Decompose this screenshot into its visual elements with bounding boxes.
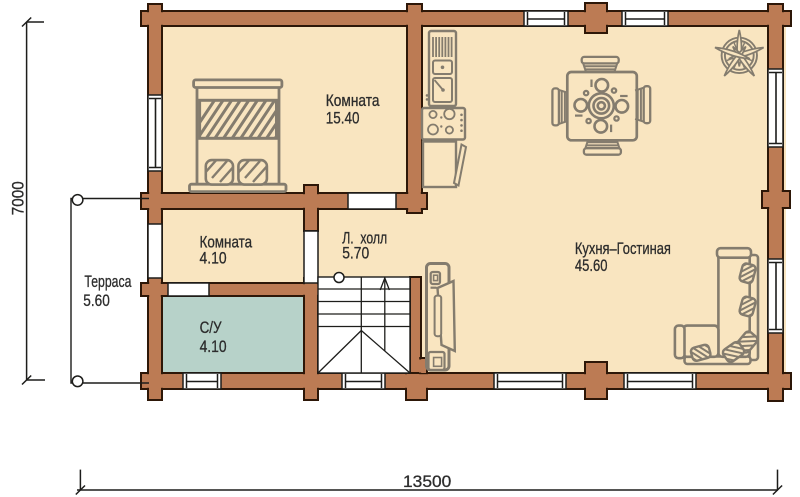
svg-text:4.10: 4.10 (200, 337, 227, 356)
svg-text:4.10: 4.10 (200, 249, 227, 268)
svg-text:7000: 7000 (9, 181, 28, 215)
svg-text:5.60: 5.60 (83, 291, 110, 310)
svg-text:Кухня–Гостиная: Кухня–Гостиная (575, 239, 671, 258)
svg-text:15.40: 15.40 (326, 108, 360, 127)
svg-text:45.60: 45.60 (575, 256, 608, 275)
svg-text:Терраса: Терраса (84, 272, 131, 291)
svg-text:5.70: 5.70 (342, 243, 369, 262)
svg-text:С/У: С/У (200, 318, 222, 337)
svg-text:13500: 13500 (403, 472, 451, 491)
svg-text:Комната: Комната (326, 91, 380, 110)
